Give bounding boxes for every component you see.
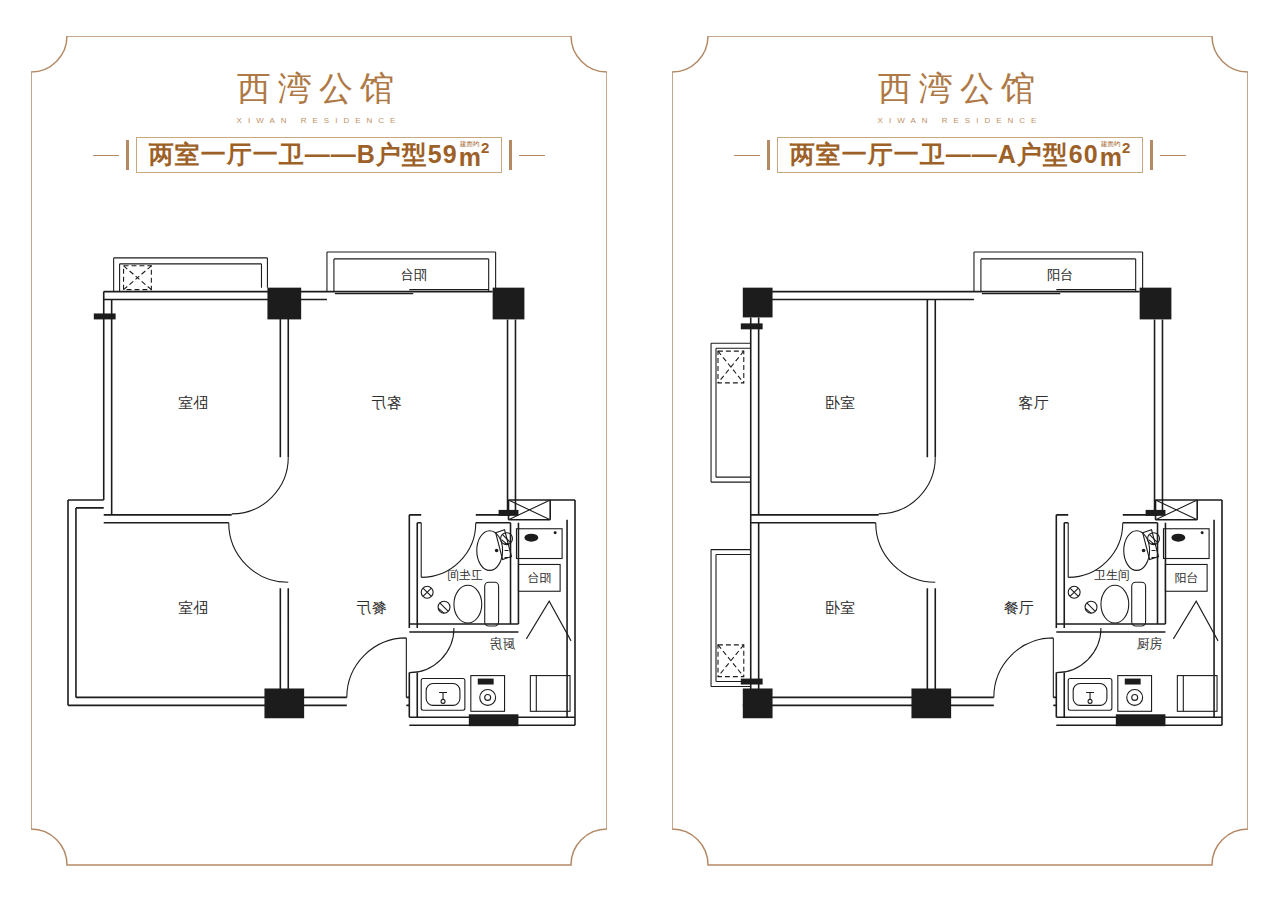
- walls: [711, 252, 1222, 725]
- window-strip: [114, 258, 268, 292]
- banner-bar-right: [1150, 140, 1153, 170]
- banner-line-right: [519, 155, 545, 156]
- banner-line-left: [734, 155, 760, 156]
- room-label-living: 客厅: [371, 395, 401, 411]
- bay-window-top: [711, 343, 751, 482]
- basin-icon: [1124, 531, 1156, 571]
- ac-unit-dashed-box: [718, 351, 744, 383]
- room-label-bedroom-bottom: 卧室: [178, 600, 208, 616]
- floor-plan-b: 卧室 客厅 卧室 餐厅 卫生间 厨房 阳台 阳台: [44, 244, 600, 750]
- room-label-kitchen: 厨房: [1137, 636, 1163, 651]
- toilet-icon: [1101, 582, 1146, 626]
- room-label-bathroom: 卫生间: [1094, 568, 1130, 582]
- panel-unit-a: 西湾公馆 XIWAN RESIDENCE 两室一厅一卫——A户型60 建面约 m…: [672, 36, 1248, 866]
- kitchen-sink-icon: [421, 679, 465, 711]
- toilet-icon: [454, 582, 499, 626]
- room-label-bedroom-bottom: 卧室: [825, 600, 855, 616]
- brand-title: 西湾公馆: [672, 66, 1248, 112]
- banner-text: 两室一厅一卫——A户型60: [790, 139, 1099, 169]
- banner-bar-left: [126, 140, 129, 170]
- kitchen-sink-icon: [1068, 679, 1112, 711]
- banner-text: 两室一厅一卫——B户型59: [149, 139, 458, 169]
- banner-bar-right: [509, 140, 512, 170]
- area-unit: 建面约 m: [459, 139, 481, 169]
- room-label-bedroom-top: 卧室: [825, 395, 855, 411]
- room-label-balcony: 阳台: [400, 267, 427, 282]
- structural-columns: [741, 288, 1172, 727]
- area-note: 建面约: [460, 141, 480, 147]
- brand-title: 西湾公馆: [31, 66, 607, 112]
- structural-columns: [94, 288, 525, 727]
- room-label-living: 客厅: [1019, 395, 1049, 411]
- room-label-dining: 餐厅: [1004, 600, 1034, 616]
- room-label-balcony-small: 阳台: [527, 571, 551, 585]
- ac-unit-dashed-box-2: [718, 645, 744, 677]
- washing-machine-icon: [496, 529, 562, 560]
- counter-cabinet: [1177, 676, 1217, 712]
- panel-unit-b: 西湾公馆 XIWAN RESIDENCE 两室一厅一卫——B户型59 建面约 m…: [31, 36, 607, 866]
- banner-line-left: [93, 155, 119, 156]
- room-label-dining: 餐厅: [357, 600, 387, 616]
- stove-washer-icon: [1118, 676, 1152, 712]
- room-label-bathroom: 卫生间: [447, 568, 483, 582]
- flyer-page: 西湾公馆 XIWAN RESIDENCE 两室一厅一卫——B户型59 建面约 m…: [0, 0, 1280, 906]
- washing-machine-icon: [1143, 529, 1209, 560]
- floor-drain-icon: [1068, 586, 1097, 613]
- brand-subtitle: XIWAN RESIDENCE: [672, 116, 1248, 125]
- area-unit: 建面约 m: [1100, 139, 1122, 169]
- floor-plan-a: 卧室 客厅 卧室 餐厅 卫生间 厨房 阳台 阳台: [691, 244, 1247, 750]
- area-exponent: 2: [481, 133, 489, 163]
- area-note: 建面约: [1101, 141, 1121, 147]
- area-exponent: 2: [1122, 133, 1130, 163]
- unit-banner-b: 两室一厅一卫——B户型59 建面约 m 2: [31, 137, 607, 173]
- unit-banner-a: 两室一厅一卫——A户型60 建面约 m 2: [672, 137, 1248, 173]
- room-label-kitchen: 厨房: [490, 636, 516, 651]
- stove-washer-icon: [471, 676, 505, 712]
- brand-block: 西湾公馆 XIWAN RESIDENCE: [31, 66, 607, 125]
- brand-block: 西湾公馆 XIWAN RESIDENCE: [672, 66, 1248, 125]
- banner-bar-left: [767, 140, 770, 170]
- banner-box: 两室一厅一卫——B户型59 建面约 m 2: [136, 137, 502, 173]
- room-label-balcony: 阳台: [1047, 267, 1074, 282]
- ac-unit-dashed-box: [124, 266, 152, 290]
- bay-window-bottom: [711, 550, 751, 687]
- brand-subtitle: XIWAN RESIDENCE: [31, 116, 607, 125]
- banner-line-right: [1160, 155, 1186, 156]
- walls: [68, 252, 575, 725]
- counter-cabinet: [530, 676, 570, 712]
- room-label-balcony-small: 阳台: [1174, 571, 1198, 585]
- banner-box: 两室一厅一卫——A户型60 建面约 m 2: [777, 137, 1143, 173]
- room-label-bedroom-top: 卧室: [178, 395, 208, 411]
- floor-drain-icon: [421, 586, 450, 613]
- basin-icon: [477, 531, 509, 571]
